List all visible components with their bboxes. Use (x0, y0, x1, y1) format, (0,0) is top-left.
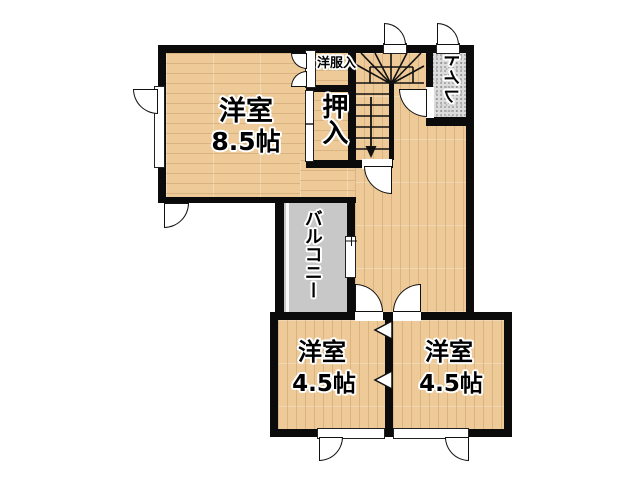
closet-sliding-door (305, 90, 314, 162)
stair-banister-wall (389, 83, 394, 160)
wall (275, 197, 284, 320)
wall (504, 312, 512, 437)
room-45-right-door-opening (393, 311, 421, 321)
room-45-right-name: 洋室 (399, 339, 499, 367)
bottom-window-casement-arc (164, 203, 189, 228)
room-85-size: 8.5帖 (196, 128, 296, 157)
room-45-left-name: 洋室 (272, 339, 372, 367)
toilet-door-opening (426, 87, 434, 118)
wall (385, 312, 393, 437)
closet-oshiire-label: 押入 (317, 93, 347, 163)
room-45-left-size: 4.5帖 (274, 371, 374, 397)
toilet-label: トイレ (440, 51, 460, 117)
room-45-right-size: 4.5帖 (401, 371, 501, 397)
room-45-left-window-arc (319, 437, 343, 461)
balcony-window (345, 236, 356, 278)
room-45-left-door-opening (355, 311, 383, 321)
floor-plan: 洋室 8.5帖 洋服入 押入 トイレ バルコニー 洋室 4.5帖 洋室 4.5帖 (0, 0, 640, 480)
door-arc-top-stairs (384, 23, 406, 45)
left-window-casement-arc (133, 89, 158, 114)
wall (270, 429, 512, 437)
balcony-label: バルコニー (301, 209, 322, 311)
balcony-edge-strip (286, 203, 289, 312)
wall (426, 45, 433, 89)
room-85-name: 洋室 (196, 96, 296, 127)
room-45-right-window-arc (445, 437, 469, 461)
door-arc-top-toilet (437, 23, 459, 45)
clothes-closet-label: 洋服入 (317, 57, 356, 72)
wall (466, 45, 474, 320)
